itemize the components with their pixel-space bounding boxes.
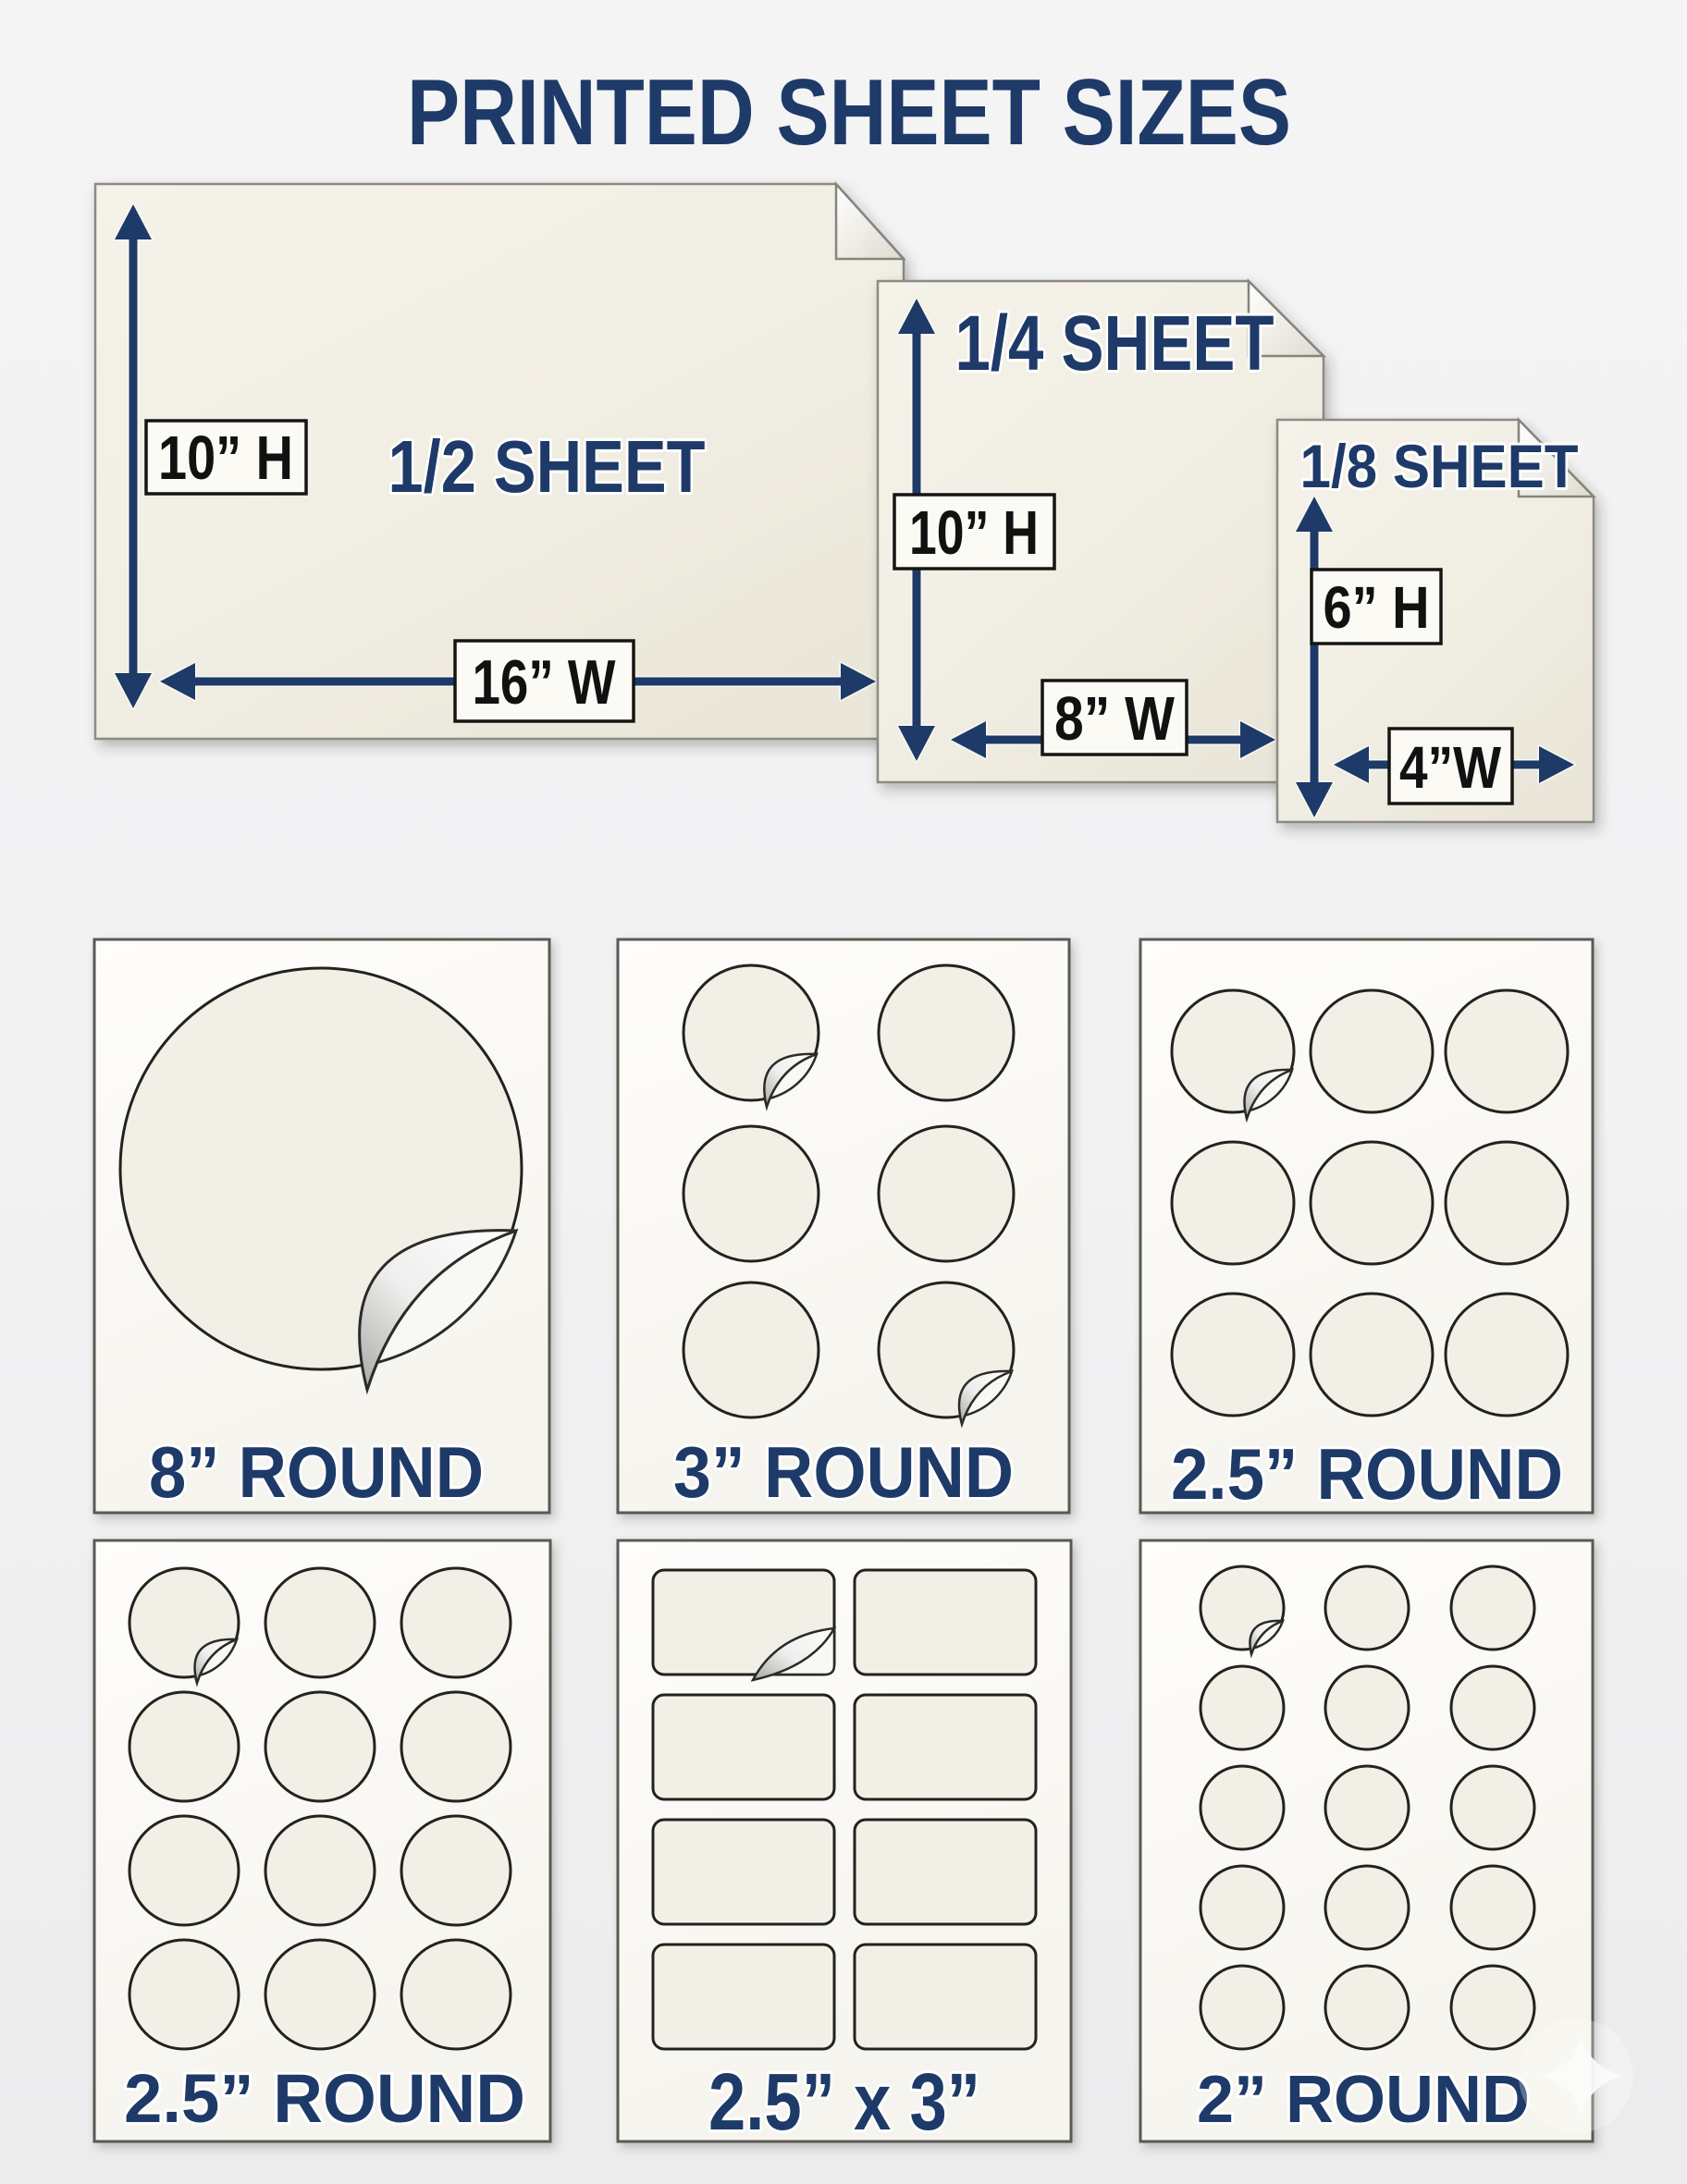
- svg-text:4”W: 4”W: [1399, 734, 1502, 801]
- svg-text:3” ROUND: 3” ROUND: [673, 1431, 1014, 1513]
- svg-text:PRINTED SHEET SIZES: PRINTED SHEET SIZES: [407, 61, 1291, 165]
- svg-text:16” W: 16” W: [473, 647, 617, 718]
- svg-text:1/4 SHEET: 1/4 SHEET: [955, 300, 1274, 386]
- svg-text:2” ROUND: 2” ROUND: [1197, 2063, 1530, 2137]
- svg-text:8” W: 8” W: [1054, 684, 1176, 754]
- svg-text:1/8 SHEET: 1/8 SHEET: [1300, 432, 1579, 500]
- svg-text:10” H: 10” H: [158, 423, 293, 493]
- svg-text:6” H: 6” H: [1324, 574, 1430, 641]
- svg-text:2.5” ROUND: 2.5” ROUND: [1171, 1433, 1563, 1515]
- svg-text:1/2 SHEET: 1/2 SHEET: [388, 425, 706, 508]
- svg-text:10” H: 10” H: [909, 498, 1039, 568]
- svg-text:2.5” x 3”: 2.5” x 3”: [708, 2057, 980, 2147]
- svg-text:8” ROUND: 8” ROUND: [149, 1431, 484, 1513]
- svg-text:2.5” ROUND: 2.5” ROUND: [124, 2060, 525, 2137]
